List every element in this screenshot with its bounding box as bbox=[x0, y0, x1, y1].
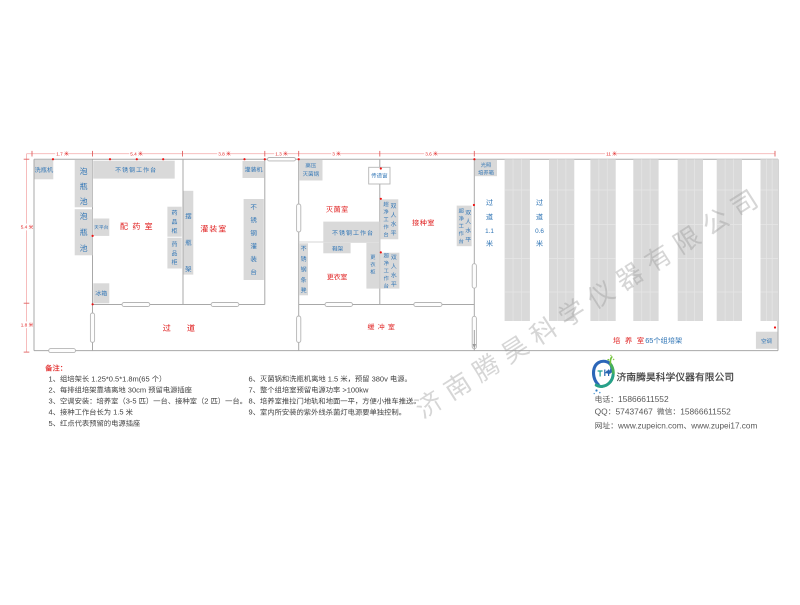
svg-text:3: 3 bbox=[332, 151, 336, 156]
svg-text:4: 4 bbox=[49, 408, 53, 417]
svg-text:65: 65 bbox=[645, 336, 653, 345]
svg-text:2: 2 bbox=[204, 397, 210, 406]
svg-text:0.6: 0.6 bbox=[535, 228, 544, 235]
svg-text:1.5: 1.5 bbox=[111, 408, 126, 417]
svg-text:3: 3 bbox=[49, 397, 53, 406]
svg-text:3-5: 3-5 bbox=[126, 397, 139, 406]
svg-text:5.4: 5.4 bbox=[130, 151, 138, 156]
svg-text:1.5: 1.5 bbox=[326, 374, 341, 383]
svg-text:57437467: 57437467 bbox=[616, 406, 654, 416]
svg-text:15866611552: 15866611552 bbox=[618, 394, 669, 404]
svg-text:8: 8 bbox=[249, 397, 253, 406]
svg-text:www.zupeicn.com: www.zupeicn.com bbox=[617, 421, 684, 430]
svg-text:www.zupei17.com: www.zupei17.com bbox=[690, 421, 757, 430]
svg-text:1.1: 1.1 bbox=[485, 228, 494, 235]
svg-text:1: 1 bbox=[49, 374, 53, 383]
svg-text:380v: 380v bbox=[370, 374, 390, 383]
svg-text:11: 11 bbox=[606, 151, 612, 156]
svg-text:1.7: 1.7 bbox=[56, 151, 64, 156]
svg-text:5.4: 5.4 bbox=[21, 225, 29, 230]
svg-text:3.8: 3.8 bbox=[218, 151, 226, 156]
svg-text:6: 6 bbox=[249, 374, 253, 383]
svg-text:2: 2 bbox=[49, 386, 53, 395]
svg-text:7: 7 bbox=[249, 386, 253, 395]
svg-text:QQ: QQ bbox=[595, 406, 609, 416]
svg-text:1.8: 1.8 bbox=[21, 323, 29, 328]
svg-text:30cm: 30cm bbox=[126, 386, 149, 395]
svg-text:9: 9 bbox=[249, 408, 253, 417]
svg-text:3.6: 3.6 bbox=[425, 151, 433, 156]
svg-text:5: 5 bbox=[49, 419, 53, 428]
svg-text:>100kw: >100kw bbox=[340, 386, 369, 395]
svg-text:1.3: 1.3 bbox=[275, 151, 283, 156]
svg-text:1.25*0.5*1.8m(65: 1.25*0.5*1.8m(65 bbox=[89, 374, 152, 383]
svg-text:15866611552: 15866611552 bbox=[680, 406, 731, 416]
